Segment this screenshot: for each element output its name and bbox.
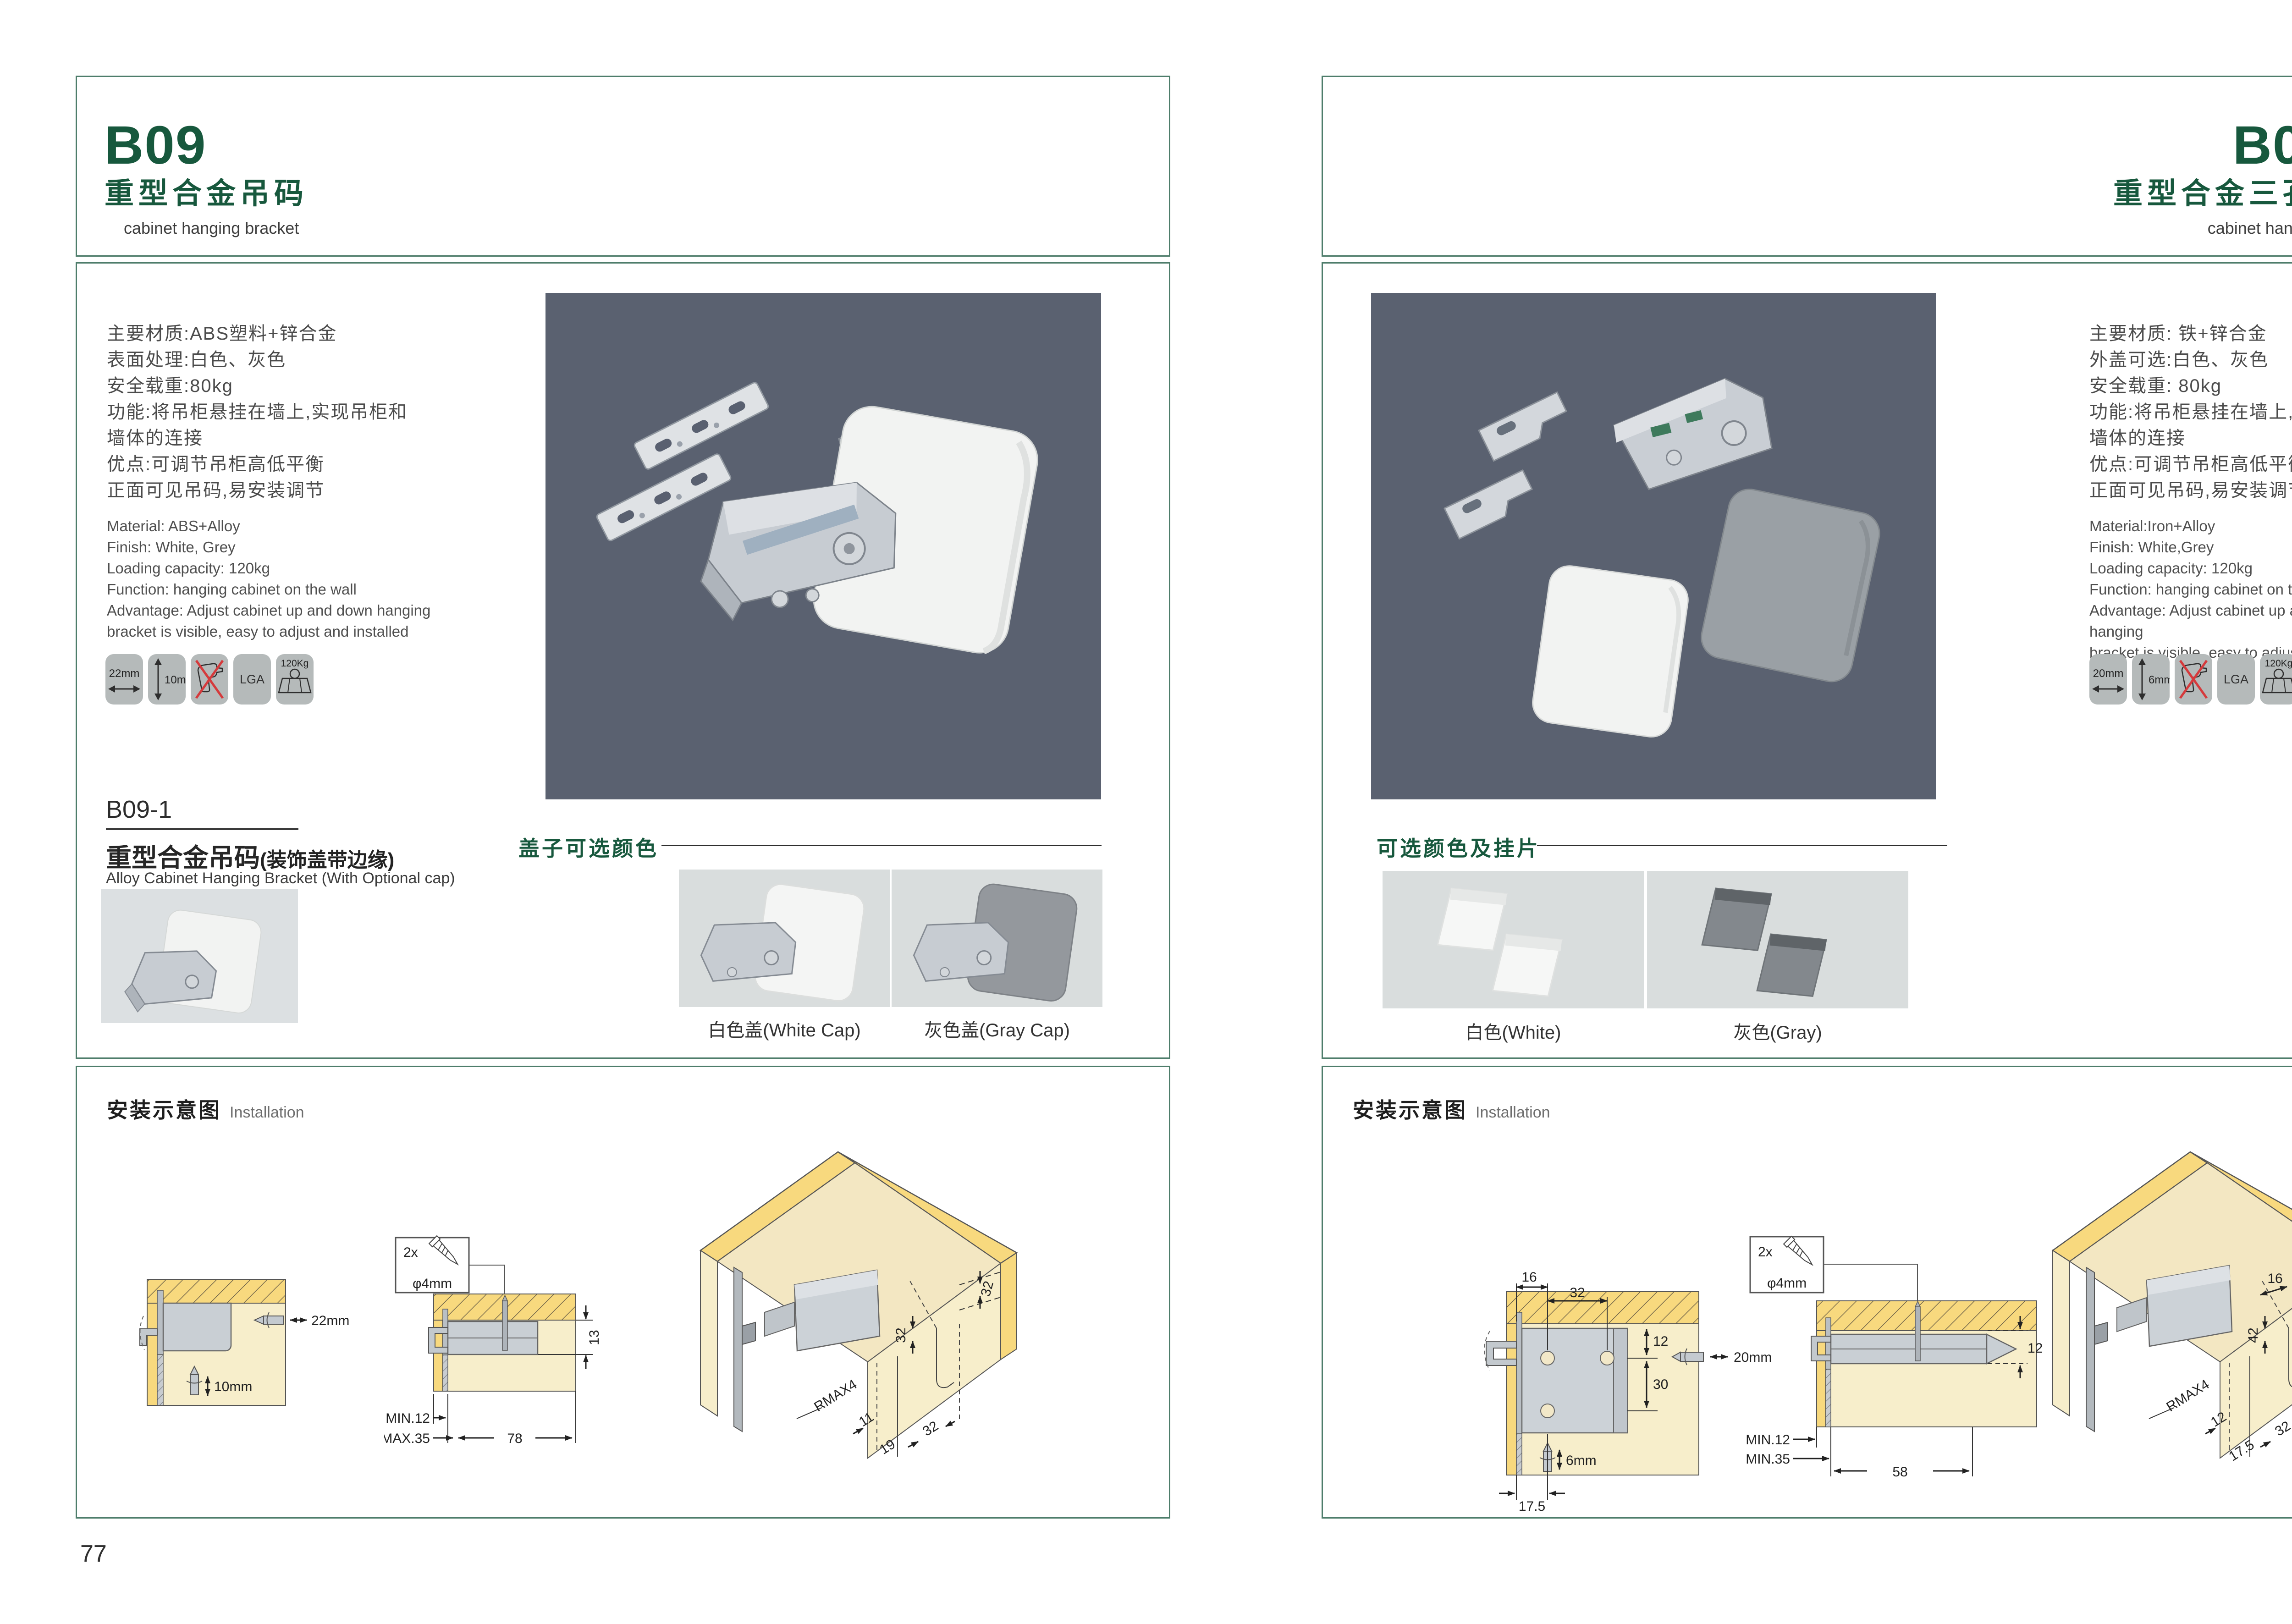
installation-label-cn: 安装示意图 — [1353, 1098, 1467, 1122]
no-drill-badge — [191, 654, 228, 705]
gray-plate-illustration — [1647, 871, 1908, 1008]
dim-12: 12 — [1653, 1334, 1668, 1349]
right-diagram-perspective: 12 16 42 RMAX4 12 17.5 32 — [2009, 1134, 2292, 1491]
dim-17-5: 17.5 — [1519, 1499, 1545, 1512]
left-page-number: 77 — [80, 1540, 107, 1568]
white-cap-image — [679, 870, 890, 1007]
installation-label-cn: 安装示意图 — [107, 1098, 221, 1122]
left-installation-box: 安装示意图Installation 22mm 10mm — [76, 1066, 1170, 1519]
load-badge: 120Kg — [2260, 654, 2292, 705]
spec-line: 正面可见吊码,易安装调节 — [107, 478, 519, 504]
right-installation-box: 安装示意图Installation 16 32 12 30 — [1322, 1066, 2292, 1519]
white-plate-illustration — [1383, 871, 1644, 1008]
screw-diameter: φ4mm — [1767, 1276, 1807, 1291]
depth-badge: 10mm — [148, 654, 186, 705]
left-feature-badges: 22mm 10mm LGA 120 — [105, 654, 314, 705]
gray-cap-caption: 灰色盖(Gray Cap) — [892, 1015, 1102, 1042]
right-title-cn: 重型合金三孔吊码 — [2113, 179, 2292, 208]
spec-line: Finish: White,Grey — [2089, 537, 2292, 558]
dim-32: 32 — [1570, 1285, 1585, 1300]
spec-line: Material:Iron+Alloy — [2089, 516, 2292, 537]
spec-line: Advantage: Adjust cabinet up and down ha… — [107, 600, 519, 621]
right-installation-title: 安装示意图Installation — [1353, 1094, 1550, 1124]
svg-text:LGA: LGA — [240, 672, 264, 686]
height-arrow-icon: 10mm — [148, 654, 186, 705]
spec-line: 正面可见吊码,易安装调节 — [2089, 478, 2292, 504]
installation-label-en: Installation — [230, 1104, 304, 1121]
sub-code-rule — [106, 828, 298, 830]
cap-section-rule — [1537, 845, 1947, 846]
gray-plate-image — [1647, 871, 1908, 1008]
spec-line: 优点:可调节吊柜高低平衡 — [107, 451, 519, 478]
spec-line: 安全载重:80kg — [107, 373, 519, 399]
right-specs-en: Material:Iron+Alloy Finish: White,Grey L… — [2089, 516, 2292, 663]
spec-line: Advantage: Adjust cabinet up and down ha… — [2089, 600, 2292, 642]
spec-line: 功能:将吊柜悬挂在墙上,实现吊柜和 — [107, 399, 519, 425]
lga-badge: LGA — [2217, 654, 2255, 705]
svg-text:10mm: 10mm — [165, 674, 186, 686]
right-header-box: B09-3 重型合金三孔吊码 cabinet hanging bracket — [1322, 76, 2292, 257]
right-title-en: cabinet hanging bracket — [2208, 220, 2292, 237]
spec-line: Finish: White, Grey — [107, 537, 519, 558]
left-sub-title-cn: 重型合金吊码 — [106, 843, 260, 872]
right-product-photo — [1371, 293, 1936, 799]
left-specs-cn: 主要材质:ABS塑料+锌合金 表面处理:白色、灰色 安全载重:80kg 功能:将… — [107, 321, 519, 504]
screw-count: 2x — [1758, 1244, 1773, 1260]
dim-78: 78 — [507, 1431, 522, 1446]
left-content-box: 主要材质:ABS塑料+锌合金 表面处理:白色、灰色 安全载重:80kg 功能:将… — [76, 262, 1170, 1059]
spec-line: 功能:将吊柜悬挂在墙上,实现吊柜和 — [2089, 399, 2292, 425]
left-title-cn: 重型合金吊码 — [105, 179, 308, 208]
dim-16: 16 — [2267, 1271, 2282, 1286]
spec-line: Material: ABS+Alloy — [107, 516, 519, 537]
installation-label-en: Installation — [1476, 1104, 1550, 1121]
spec-line: 主要材质:ABS塑料+锌合金 — [107, 321, 519, 347]
dim-32: 32 — [2272, 1418, 2292, 1439]
dim-32-bottom: 32 — [920, 1418, 941, 1439]
left-installation-title: 安装示意图Installation — [107, 1094, 304, 1124]
lga-icon: LGA — [233, 654, 271, 705]
white-cap-caption: 白色盖(White Cap) — [679, 1015, 890, 1042]
left-sub-code: B09-1 — [106, 795, 172, 824]
dim-16: 16 — [1521, 1270, 1537, 1285]
svg-text:20mm: 20mm — [2093, 667, 2124, 680]
right-product-photo-illustration — [1371, 293, 1936, 799]
left-sub-title-cn-paren: (装饰盖带边缘) — [260, 849, 394, 871]
spec-line: 安全载重: 80kg — [2089, 373, 2292, 399]
dim-min35: MIN.35 — [1746, 1452, 1790, 1467]
white-cap — [1530, 563, 1691, 739]
spec-line: Loading capacity: 120kg — [107, 558, 519, 579]
no-drill-icon — [191, 654, 228, 705]
dim-32-mid: 32 — [893, 1327, 909, 1343]
dim-max35: MAX.35 — [384, 1431, 430, 1446]
load-weight-icon: 120Kg — [276, 654, 314, 705]
dim-6mm: 6mm — [1566, 1453, 1597, 1468]
lga-icon: LGA — [2217, 654, 2255, 705]
left-sub-product-image — [101, 889, 298, 1025]
screw-count: 2x — [403, 1245, 418, 1260]
svg-text:6mm: 6mm — [2149, 674, 2170, 686]
no-drill-icon — [2175, 654, 2212, 705]
cap-section-rule — [661, 845, 1102, 846]
svg-text:LGA: LGA — [2224, 672, 2248, 686]
right-specs-cn: 主要材质: 铁+锌合金 外盖可选:白色、灰色 安全载重: 80kg 功能:将吊柜… — [2089, 321, 2292, 504]
dim-30: 30 — [1653, 1377, 1668, 1392]
white-cap-illustration — [679, 870, 890, 1007]
left-diagram-perspective: 32 32 RMAX4 11 19 32 — [680, 1134, 1042, 1491]
left-product-photo — [545, 293, 1101, 799]
dim-13: 13 — [587, 1330, 602, 1345]
left-product-photo-illustration — [545, 293, 1101, 799]
left-sub-title-en: Alloy Cabinet Hanging Bracket (With Opti… — [106, 870, 455, 887]
spec-line: 表面处理:白色、灰色 — [107, 347, 519, 373]
spec-line: 优点:可调节吊柜高低平衡 — [2089, 451, 2292, 478]
width-badge: 20mm — [2089, 654, 2127, 705]
dim-58: 58 — [1892, 1464, 1907, 1480]
no-drill-badge — [2175, 654, 2212, 705]
svg-text:120Kg: 120Kg — [281, 658, 309, 669]
white-plate-image — [1383, 871, 1644, 1008]
spec-line: 墙体的连接 — [107, 425, 519, 451]
right-feature-badges: 20mm 6mm LGA 120K — [2089, 654, 2292, 705]
dim-min12: MIN.12 — [386, 1411, 430, 1426]
spec-line: bracket is visible, easy to adjust and i… — [107, 621, 519, 642]
left-title-en: cabinet hanging bracket — [124, 220, 299, 237]
spec-line: Function: hanging cabinet on the wall — [2089, 579, 2292, 600]
right-product-code: B09-3 — [2233, 118, 2292, 172]
left-sub-product-illustration — [101, 889, 298, 1023]
depth-badge: 6mm — [2132, 654, 2170, 705]
width-arrow-icon: 20mm — [2089, 654, 2127, 705]
left-sub-title: 重型合金吊码(装饰盖带边缘) — [106, 837, 394, 875]
svg-text:22mm: 22mm — [109, 667, 140, 680]
spec-line: 墙体的连接 — [2089, 425, 2292, 451]
dim-rmax4: RMAX4 — [2164, 1377, 2212, 1415]
dim-22mm: 22mm — [311, 1313, 349, 1328]
gray-cap-image — [892, 870, 1102, 1007]
gray-plate-caption: 灰色(Gray) — [1647, 1018, 1908, 1044]
left-diagram-section: 22mm 10mm — [139, 1239, 396, 1496]
height-arrow-icon: 6mm — [2132, 654, 2170, 705]
dim-rmax4: RMAX4 — [811, 1377, 859, 1415]
left-cap-section-label: 盖子可选颜色 — [518, 832, 659, 862]
width-arrow-icon: 22mm — [105, 654, 143, 705]
svg-text:120Kg: 120Kg — [2265, 658, 2292, 669]
left-header-box: B09 重型合金吊码 cabinet hanging bracket — [76, 76, 1170, 257]
width-badge: 22mm — [105, 654, 143, 705]
dim-min12: MIN.12 — [1746, 1432, 1790, 1448]
load-weight-icon: 120Kg — [2260, 654, 2292, 705]
right-cap-section-label: 可选颜色及挂片 — [1377, 832, 1540, 862]
white-plate-caption: 白色(White) — [1383, 1018, 1644, 1044]
dim-42: 42 — [2246, 1327, 2261, 1343]
spec-line: Function: hanging cabinet on the wall — [107, 579, 519, 600]
lga-badge: LGA — [233, 654, 271, 705]
spec-line: 外盖可选:白色、灰色 — [2089, 347, 2292, 373]
screw-diameter: φ4mm — [413, 1276, 452, 1291]
load-badge: 120Kg — [276, 654, 314, 705]
dim-10mm: 10mm — [214, 1379, 252, 1394]
gray-cap-illustration — [892, 870, 1102, 1007]
right-content-box: 主要材质: 铁+锌合金 外盖可选:白色、灰色 安全载重: 80kg 功能:将吊柜… — [1322, 262, 2292, 1059]
spec-line: Loading capacity: 120kg — [2089, 558, 2292, 579]
left-specs-en: Material: ABS+Alloy Finish: White, Grey … — [107, 516, 519, 642]
left-product-code: B09 — [105, 118, 206, 172]
spec-line: 主要材质: 铁+锌合金 — [2089, 321, 2292, 347]
